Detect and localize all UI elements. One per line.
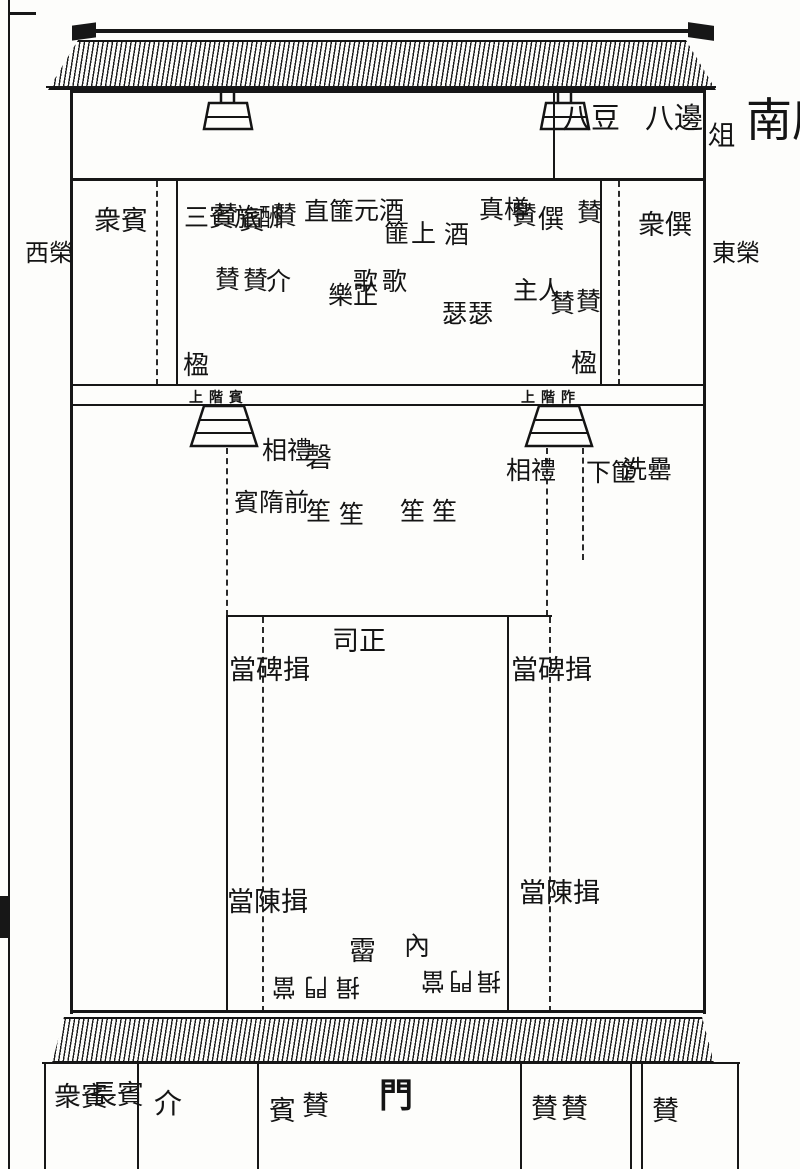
- gate-row-v3: [520, 1063, 522, 1169]
- label-east-eave: 東榮: [712, 240, 739, 268]
- label-sheng-2: 笙: [339, 495, 364, 531]
- east-wall: [703, 90, 706, 1014]
- gate-row-v4: [630, 1063, 632, 1169]
- label-sheng-3: 笙: [400, 492, 425, 528]
- label-zan-w2: 賛: [272, 196, 297, 232]
- label-qing-chime: 磬: [305, 436, 332, 475]
- gate-row-v0: [44, 1063, 46, 1169]
- inner-box-top-line: [227, 615, 552, 617]
- label-bin-sui-qian: 賓隋前: [234, 485, 262, 522]
- label-zan-1-gate: 賛: [302, 1084, 329, 1123]
- label-zan-h2: 賛: [576, 282, 601, 318]
- page-left-top-tick: [8, 12, 36, 15]
- stair-west: [190, 405, 258, 447]
- inner-box-east-solid: [507, 615, 509, 1012]
- roof-ridge-cap-west: [72, 22, 96, 40]
- label-zan-e1: 賛: [512, 196, 537, 232]
- label-pillar-west: 楹: [183, 345, 209, 382]
- terrace-edge-line: [70, 404, 706, 406]
- label-xiang-li-east: 相禮: [506, 457, 534, 485]
- label-zhi-fei: 直篚: [304, 199, 332, 224]
- label-bin-gate: 賓: [269, 1089, 296, 1128]
- label-eight-dou: 八豆: [562, 95, 594, 142]
- woodblock-diagram-page: 八邊 八豆 俎 南康軍學鄉飲圖 西榮 東榮 衆賓 衆僎 三賓旅酬 楹 賛 賓 賛…: [0, 0, 800, 1169]
- label-zan-2-gate: 賛: [531, 1087, 558, 1126]
- label-zhu-ren-host: 主人: [513, 279, 541, 304]
- gate-row-v1: [137, 1063, 139, 1169]
- label-nei: 內: [404, 926, 430, 963]
- stair-east: [525, 405, 593, 447]
- label-liu: 霤: [349, 929, 376, 968]
- hall-floor-line: [70, 384, 706, 386]
- label-west-guest-steps: 上階賓: [189, 387, 249, 407]
- label-east-room-zhong-zun: 衆僎: [638, 207, 668, 245]
- gate-row-top-line: [42, 1062, 740, 1064]
- inner-box-west-solid: [226, 615, 228, 1012]
- label-zhen-zun: 真樽: [479, 197, 507, 223]
- label-zu-stand: 俎: [708, 114, 735, 153]
- label-bow-at-gate-west: 揖門當: [264, 972, 360, 1007]
- label-zan-h1: 賛: [550, 284, 575, 320]
- gate-row-v6: [737, 1063, 739, 1169]
- label-xia-fei: 下篚: [586, 459, 614, 486]
- label-bin-guest: 賓: [239, 200, 265, 237]
- label-west-eave: 西榮: [25, 240, 52, 268]
- label-sheng-4: 笙: [432, 492, 457, 528]
- label-west-room-zhong-bin: 衆賓: [94, 206, 124, 238]
- label-xi-lei: 洗罍: [622, 456, 650, 484]
- label-si-zheng: 司正: [332, 626, 362, 658]
- label-san-bin-lu-chou: 三賓旅酬: [184, 205, 212, 232]
- gate-row-v5: [641, 1063, 643, 1169]
- label-eight-bian: 八邊: [645, 95, 677, 142]
- label-zun-honored: 僎: [538, 199, 564, 236]
- page-title: 南康軍學鄉飲圖: [746, 92, 798, 149]
- label-east-host-steps: 上階阼: [521, 387, 581, 407]
- label-jie: 介: [266, 262, 291, 298]
- guide-dashed-west: [226, 448, 228, 616]
- label-bow-at-stele-west: 當碑揖: [229, 650, 259, 693]
- label-zan-j2: 賛: [243, 261, 268, 297]
- label-bow-at-chen-east: 當陳揖: [519, 875, 549, 912]
- label-pillar-east: 楹: [571, 343, 597, 380]
- hall-east-room-dashed: [618, 181, 620, 385]
- roof-ridge: [92, 29, 698, 33]
- bracket-west: [203, 93, 253, 133]
- offering-box-left-edge: [553, 92, 555, 180]
- gate-roof-thatch: [52, 1017, 714, 1063]
- roof-thatch: [48, 40, 716, 90]
- north-wall-line: [70, 90, 706, 93]
- label-jiu: 酒: [444, 215, 469, 251]
- label-sheng-1: 笙: [306, 492, 331, 528]
- label-bow-at-chen-west: 當陳揖: [227, 884, 257, 921]
- binding-mark: [0, 896, 10, 938]
- gate-row-v2: [257, 1063, 259, 1169]
- label-se-zithers: 瑟瑟: [442, 294, 494, 330]
- roof-ridge-cap-east: [688, 22, 714, 41]
- label-zan-j1: 賛: [215, 260, 240, 296]
- label-bow-at-gate-east: 揖門當: [417, 966, 501, 1001]
- hall-west-room-dashed: [156, 181, 158, 385]
- label-zan-e2: 賛: [577, 193, 602, 229]
- label-men-gate: 門: [379, 1068, 413, 1117]
- label-zan-w1: 賛: [213, 196, 238, 232]
- label-zhong-bin-gate: 衆賓: [54, 1082, 84, 1114]
- roof-eave-line: [46, 86, 716, 88]
- guide-dashed-east-outer: [582, 448, 584, 560]
- west-wall: [70, 90, 73, 1014]
- label-zan-3-gate: 賛: [561, 1087, 588, 1126]
- page-left-border: [8, 0, 10, 1169]
- label-yue-zheng: 樂正: [328, 283, 356, 309]
- label-zan-4-gate: 賛: [652, 1089, 679, 1128]
- label-bow-at-stele-east: 當碑揖: [511, 650, 541, 693]
- label-yuan-jiu: 元酒: [354, 197, 382, 224]
- label-xiang-li-west: 相禮: [262, 437, 290, 465]
- hall-top-line: [70, 178, 706, 181]
- label-jie-gate: 介: [154, 1082, 182, 1122]
- gate-wall-line: [70, 1010, 706, 1013]
- hall-west-inner-line: [176, 181, 178, 385]
- label-shang-fei: 篚上: [384, 214, 438, 250]
